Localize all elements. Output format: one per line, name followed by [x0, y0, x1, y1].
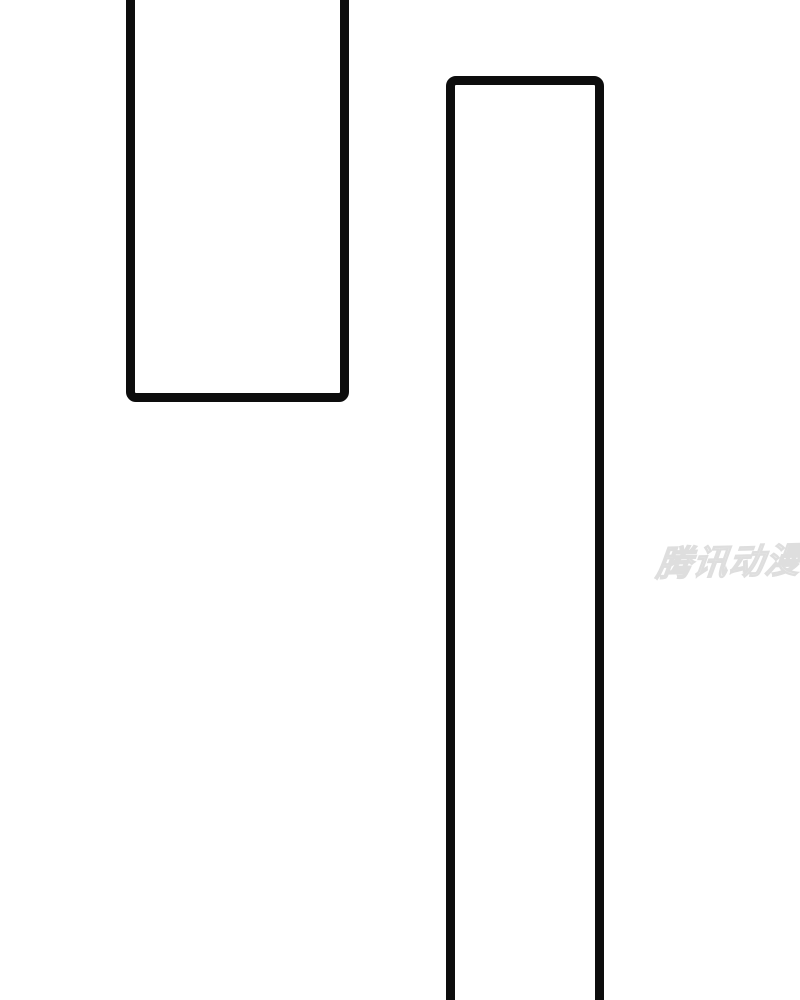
comic-panel-tall-right: [446, 76, 604, 1000]
comic-page: 腾讯动漫: [0, 0, 800, 1000]
tencent-comics-watermark: 腾讯动漫: [654, 539, 800, 587]
comic-panel-top-left: [126, 0, 349, 402]
